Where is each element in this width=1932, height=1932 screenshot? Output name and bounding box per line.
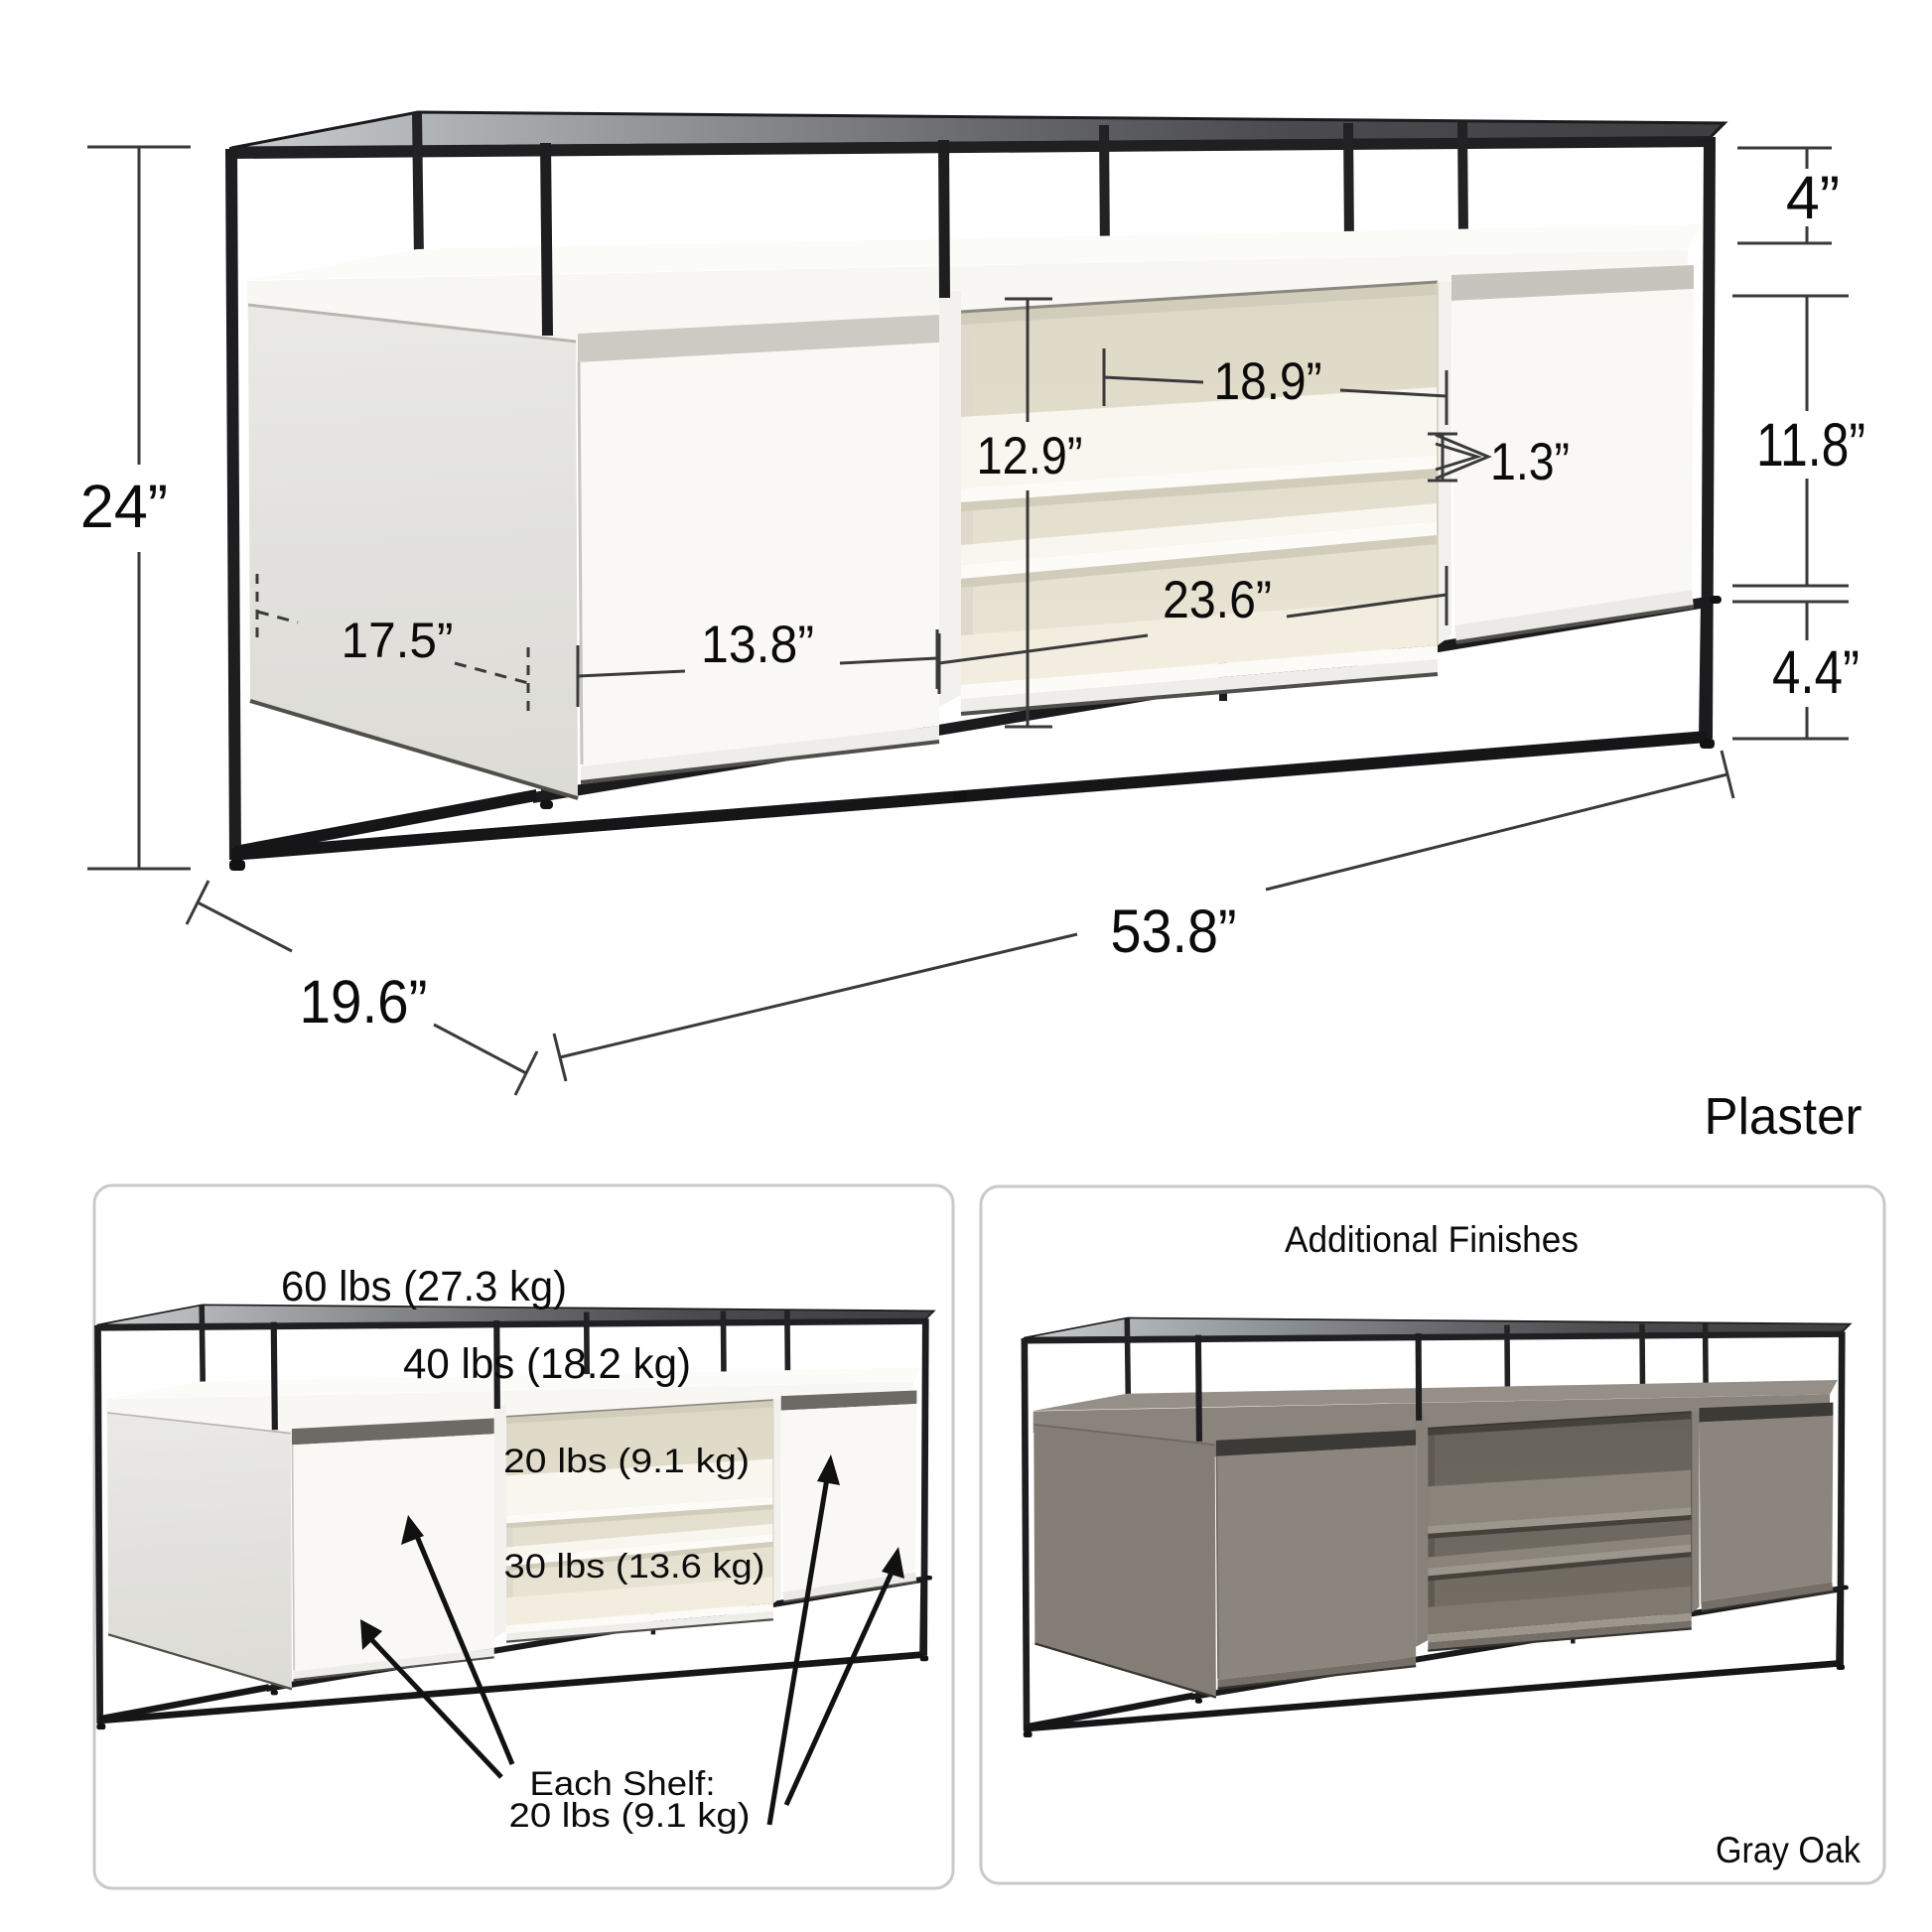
svg-text:Additional Finishes: Additional Finishes — [1285, 1219, 1579, 1260]
svg-text:4.4”: 4.4” — [1772, 638, 1860, 706]
svg-text:53.8”: 53.8” — [1111, 897, 1237, 965]
svg-text:30 lbs (13.6 kg): 30 lbs (13.6 kg) — [504, 1548, 765, 1586]
svg-text:17.5”: 17.5” — [342, 613, 454, 668]
svg-text:Plaster: Plaster — [1705, 1088, 1863, 1146]
svg-text:18.9”: 18.9” — [1214, 352, 1322, 411]
svg-text:12.9”: 12.9” — [977, 427, 1083, 485]
svg-text:13.8”: 13.8” — [701, 616, 814, 674]
svg-text:60 lbs (27.3 kg): 60 lbs (27.3 kg) — [281, 1263, 567, 1311]
svg-text:40 lbs (18.2 kg): 40 lbs (18.2 kg) — [403, 1340, 691, 1388]
svg-text:1.3”: 1.3” — [1490, 433, 1570, 491]
svg-text:11.8”: 11.8” — [1756, 411, 1865, 479]
svg-text:24”: 24” — [80, 473, 168, 540]
svg-text:4”: 4” — [1786, 164, 1840, 231]
svg-text:Gray Oak: Gray Oak — [1716, 1830, 1861, 1870]
svg-text:20 lbs (9.1 kg): 20 lbs (9.1 kg) — [503, 1443, 750, 1480]
svg-text:23.6”: 23.6” — [1163, 571, 1272, 629]
svg-text:19.6”: 19.6” — [300, 968, 428, 1035]
svg-text:20 lbs (9.1 kg): 20 lbs (9.1 kg) — [509, 1797, 751, 1835]
